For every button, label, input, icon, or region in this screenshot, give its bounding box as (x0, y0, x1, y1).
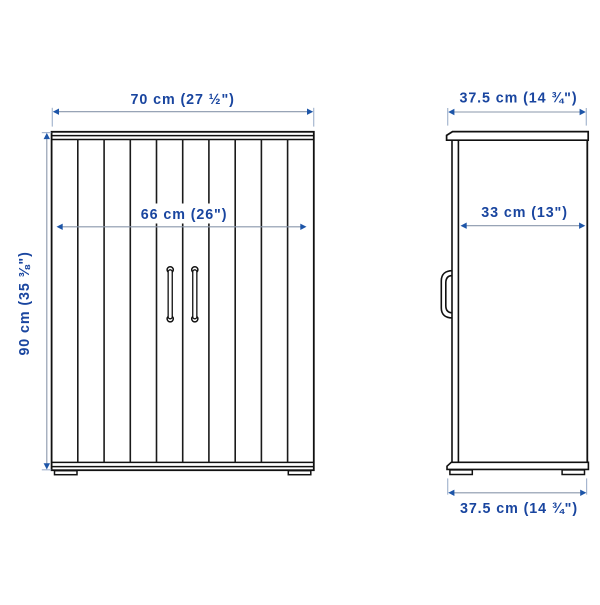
svg-text:90 cm (35 ⅜"): 90 cm (35 ⅜") (17, 251, 33, 355)
svg-text:37.5 cm (14 ¾"): 37.5 cm (14 ¾") (460, 501, 578, 517)
svg-text:70 cm (27 ½"): 70 cm (27 ½") (131, 92, 235, 108)
svg-text:37.5 cm (14 ¾"): 37.5 cm (14 ¾") (459, 91, 577, 107)
svg-text:33 cm (13"): 33 cm (13") (481, 205, 568, 221)
svg-text:66 cm (26"): 66 cm (26") (141, 207, 228, 223)
